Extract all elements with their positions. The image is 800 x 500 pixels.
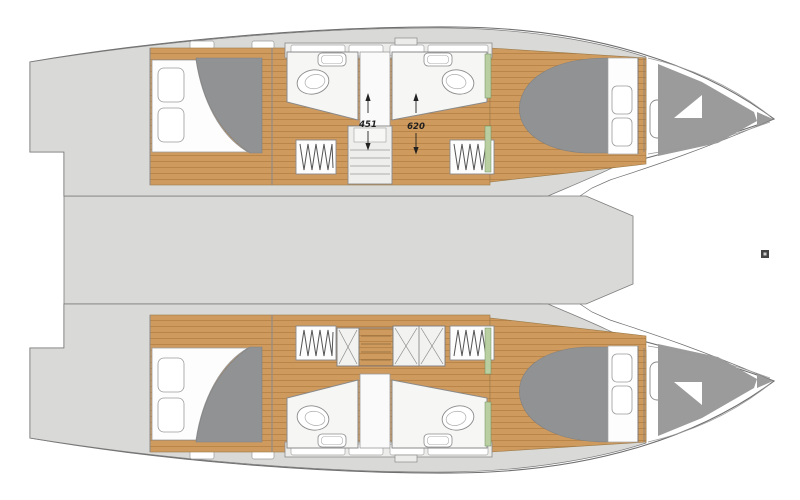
dim-label-fwd: 620: [407, 122, 425, 132]
port-hull: [30, 27, 774, 196]
dim-label-aft: 451: [358, 120, 377, 130]
companionway-stairs: [359, 328, 393, 366]
deck-plan-canvas: 451 620: [0, 0, 800, 500]
companionway-stairs: [348, 126, 392, 184]
stray-marker: [761, 250, 769, 258]
hatch-x-cover-double: [393, 326, 445, 366]
deck-plan-page: 451 620: [0, 0, 800, 500]
bridgedeck: [64, 196, 633, 304]
hatch-x-cover: [337, 328, 359, 366]
starboard-mid-hatches: [337, 326, 445, 366]
